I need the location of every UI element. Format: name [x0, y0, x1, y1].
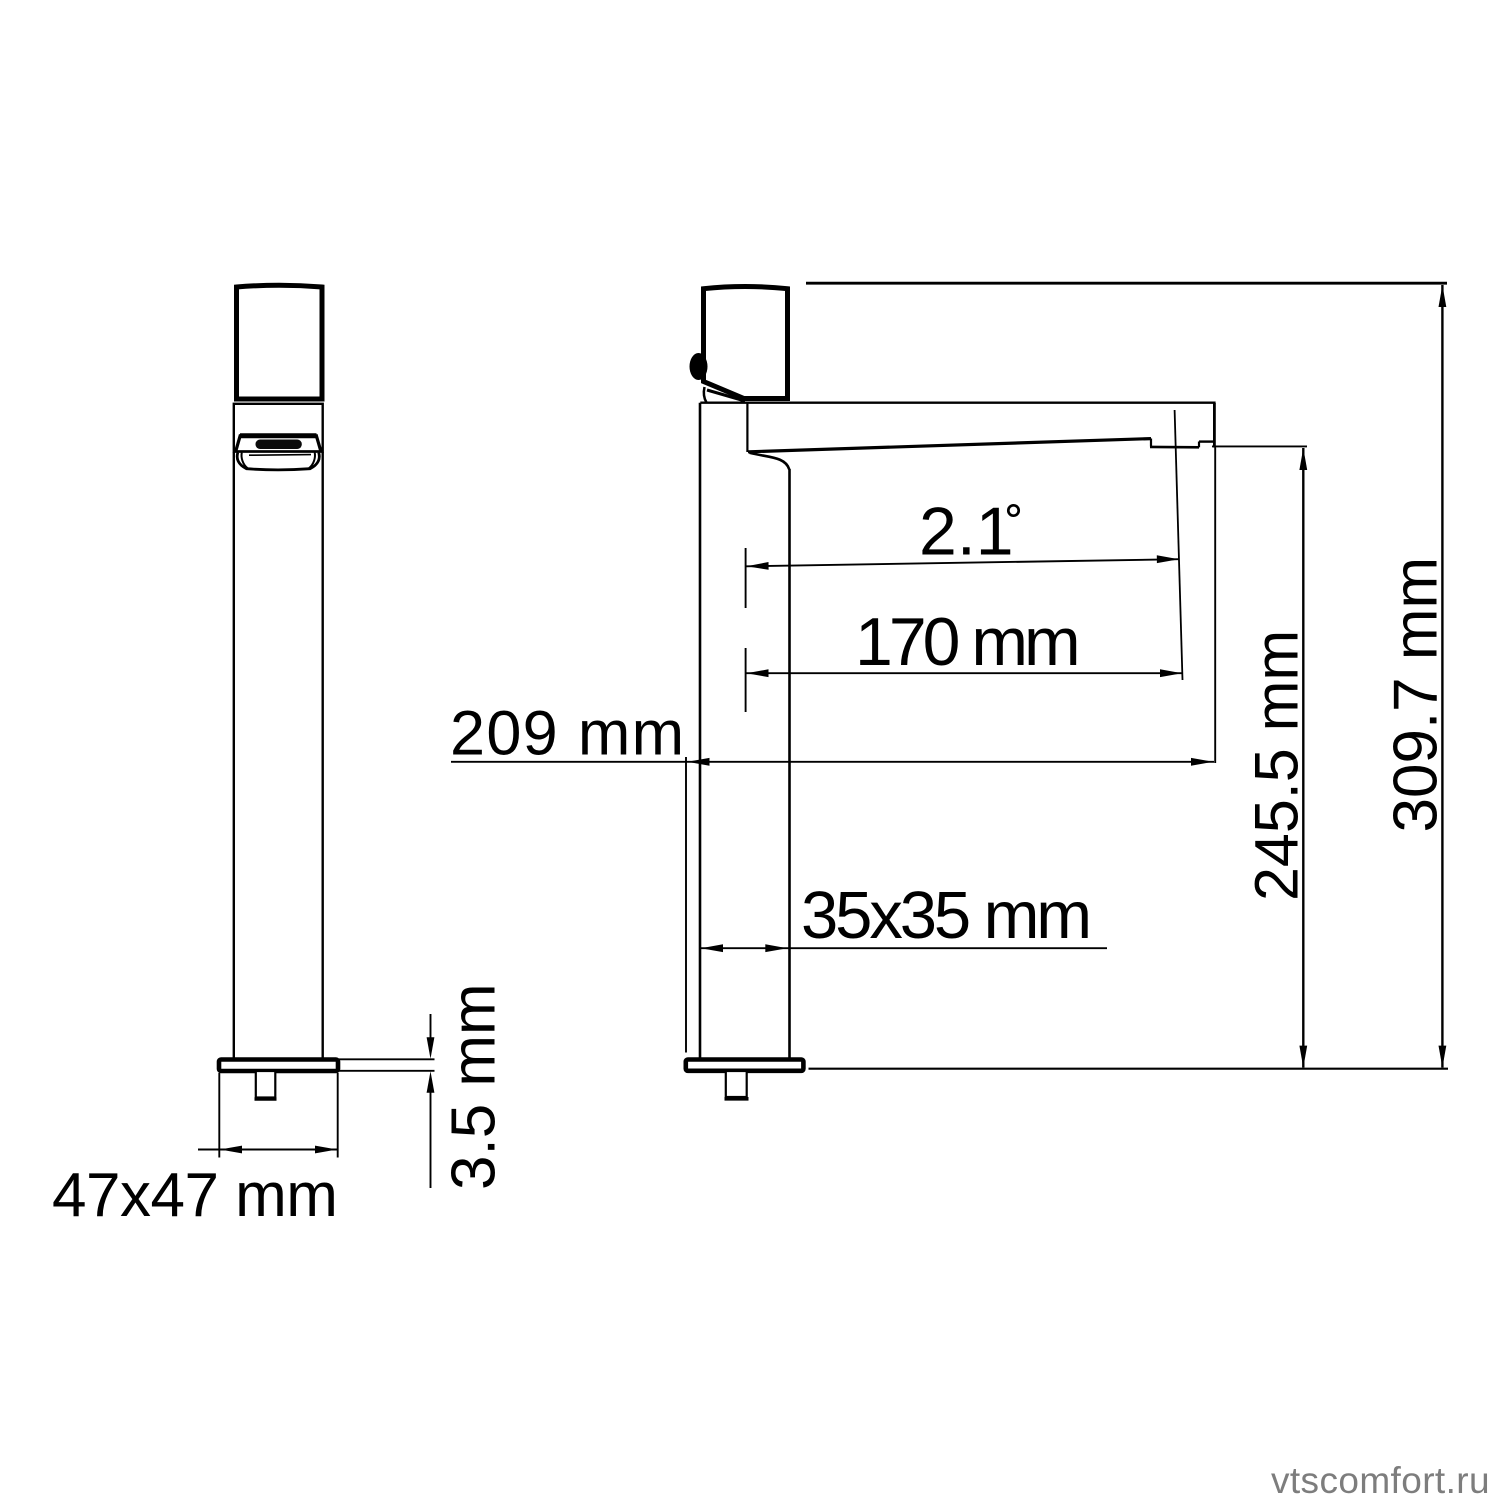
svg-text:3.5 mm: 3.5 mm: [440, 983, 509, 1190]
svg-text:245.5 mm: 245.5 mm: [1243, 630, 1311, 901]
svg-text:209 mm: 209 mm: [450, 699, 685, 769]
svg-text:vtscomfort.ru: vtscomfort.ru: [1271, 1460, 1490, 1500]
svg-text:35x35 mm: 35x35 mm: [801, 878, 1089, 953]
svg-text:170 mm: 170 mm: [855, 604, 1077, 680]
svg-text:2.1: 2.1: [919, 494, 1014, 570]
svg-text:309.7 mm: 309.7 mm: [1382, 557, 1451, 833]
svg-text:47x47 mm: 47x47 mm: [52, 1161, 337, 1230]
